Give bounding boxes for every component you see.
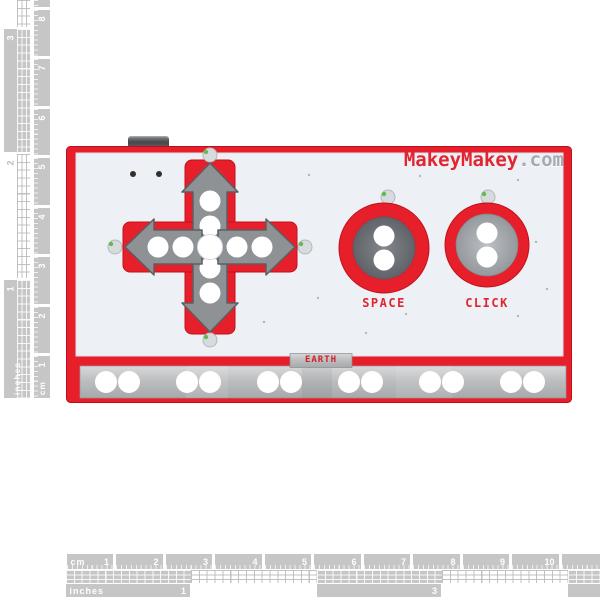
bottom-ruler-cm-row: 1cm2345678910 <box>65 554 600 569</box>
unit-label: cm <box>37 381 47 395</box>
bottom-ruler-inches-row: 1inches3 <box>65 584 600 597</box>
ruler-block <box>442 584 567 597</box>
ruler-block: 7 <box>34 59 50 106</box>
makey-makey-board: MakeyMakey.com SPACE CLICK EARTH <box>66 146 572 403</box>
ruler-block: 7 <box>364 554 411 569</box>
tick-label: 1 <box>181 586 186 596</box>
brand-name: MakeyMakey <box>404 149 518 171</box>
left-ruler-cm-column: 1cm2345678 <box>34 0 50 398</box>
brand-text: MakeyMakey.com <box>404 149 564 171</box>
click-button <box>445 203 529 287</box>
ruler-block: 3 <box>34 257 50 304</box>
tick-label: 2 <box>37 308 47 324</box>
ruler-block: 1inches <box>66 584 191 597</box>
bottom-ruler: 1cm2345678910 1inches3 <box>65 554 600 598</box>
tick-label: 4 <box>37 209 47 225</box>
left-ruler-inches-column: 1inches23 <box>4 0 30 398</box>
ruler-ticks <box>442 570 568 583</box>
ruler-block: 9 <box>463 554 510 569</box>
ruler-block <box>4 0 30 27</box>
left-ruler: 1inches23 1cm2345678 <box>4 0 50 398</box>
tick-label: 5 <box>37 159 47 175</box>
ruler-block: 1cm <box>67 554 114 569</box>
earth-label: EARTH <box>291 354 351 367</box>
ruler-block: 1cm <box>34 356 50 398</box>
tick-label: 4 <box>252 557 257 567</box>
ruler-block: 8 <box>413 554 460 569</box>
ruler-block <box>568 584 600 597</box>
earth-bar <box>80 366 566 398</box>
bottom-ruler-tick-strip <box>65 570 600 583</box>
unit-label: cm <box>71 557 86 567</box>
ruler-block: 3 <box>4 29 30 153</box>
tick-label: 1 <box>104 557 109 567</box>
dpad-center-hole <box>198 235 223 260</box>
ruler-block <box>562 554 600 569</box>
space-button <box>339 203 429 293</box>
ruler-block: 4 <box>34 208 50 255</box>
click-label: CLICK <box>437 296 537 310</box>
ruler-block: 5 <box>265 554 312 569</box>
ruler-block: 4 <box>215 554 262 569</box>
product-photo: 1inches23 1cm2345678 1cm2345678910 1inch… <box>0 0 600 600</box>
tick-label: 1 <box>37 357 47 373</box>
tick-label: 5 <box>302 557 307 567</box>
ruler-block: 2 <box>34 307 50 354</box>
ruler-block: 6 <box>34 109 50 156</box>
tick-label: 10 <box>544 557 554 567</box>
unit-label: inches <box>12 362 22 395</box>
ruler-block: 3 <box>166 554 213 569</box>
tick-label: 6 <box>37 110 47 126</box>
ruler-block: 2 <box>4 154 30 278</box>
tick-label: 6 <box>351 557 356 567</box>
tick-label: 9 <box>500 557 505 567</box>
ruler-block: 1inches <box>4 280 30 399</box>
space-label: SPACE <box>334 296 434 310</box>
tick-label: 3 <box>37 258 47 274</box>
ruler-block: 2 <box>116 554 163 569</box>
ruler-block: 6 <box>314 554 361 569</box>
tick-label: 7 <box>401 557 406 567</box>
tick-label: 3 <box>203 557 208 567</box>
brand-domain: .com <box>518 149 564 171</box>
ruler-ticks <box>568 570 600 583</box>
tick-label: 2 <box>6 157 16 170</box>
unit-label: inches <box>70 586 105 596</box>
tick-label: 8 <box>37 11 47 27</box>
ruler-block: 3 <box>317 584 442 597</box>
tick-label: 8 <box>450 557 455 567</box>
ruler-block: 8 <box>34 10 50 57</box>
ruler-block <box>191 584 316 597</box>
ruler-ticks <box>17 154 30 278</box>
ruler-block: 5 <box>34 158 50 205</box>
ruler-block: 10 <box>512 554 559 569</box>
ruler-ticks <box>17 0 30 27</box>
tick-label: 7 <box>37 60 47 76</box>
ruler-block <box>34 0 50 7</box>
ruler-ticks <box>191 570 317 583</box>
tick-label: 3 <box>6 31 16 44</box>
tick-label: 3 <box>432 586 437 596</box>
ruler-ticks <box>317 570 443 583</box>
ruler-ticks <box>66 570 192 583</box>
ruler-ticks <box>17 29 30 153</box>
tick-label: 1 <box>6 282 16 295</box>
tick-label: 2 <box>153 557 158 567</box>
